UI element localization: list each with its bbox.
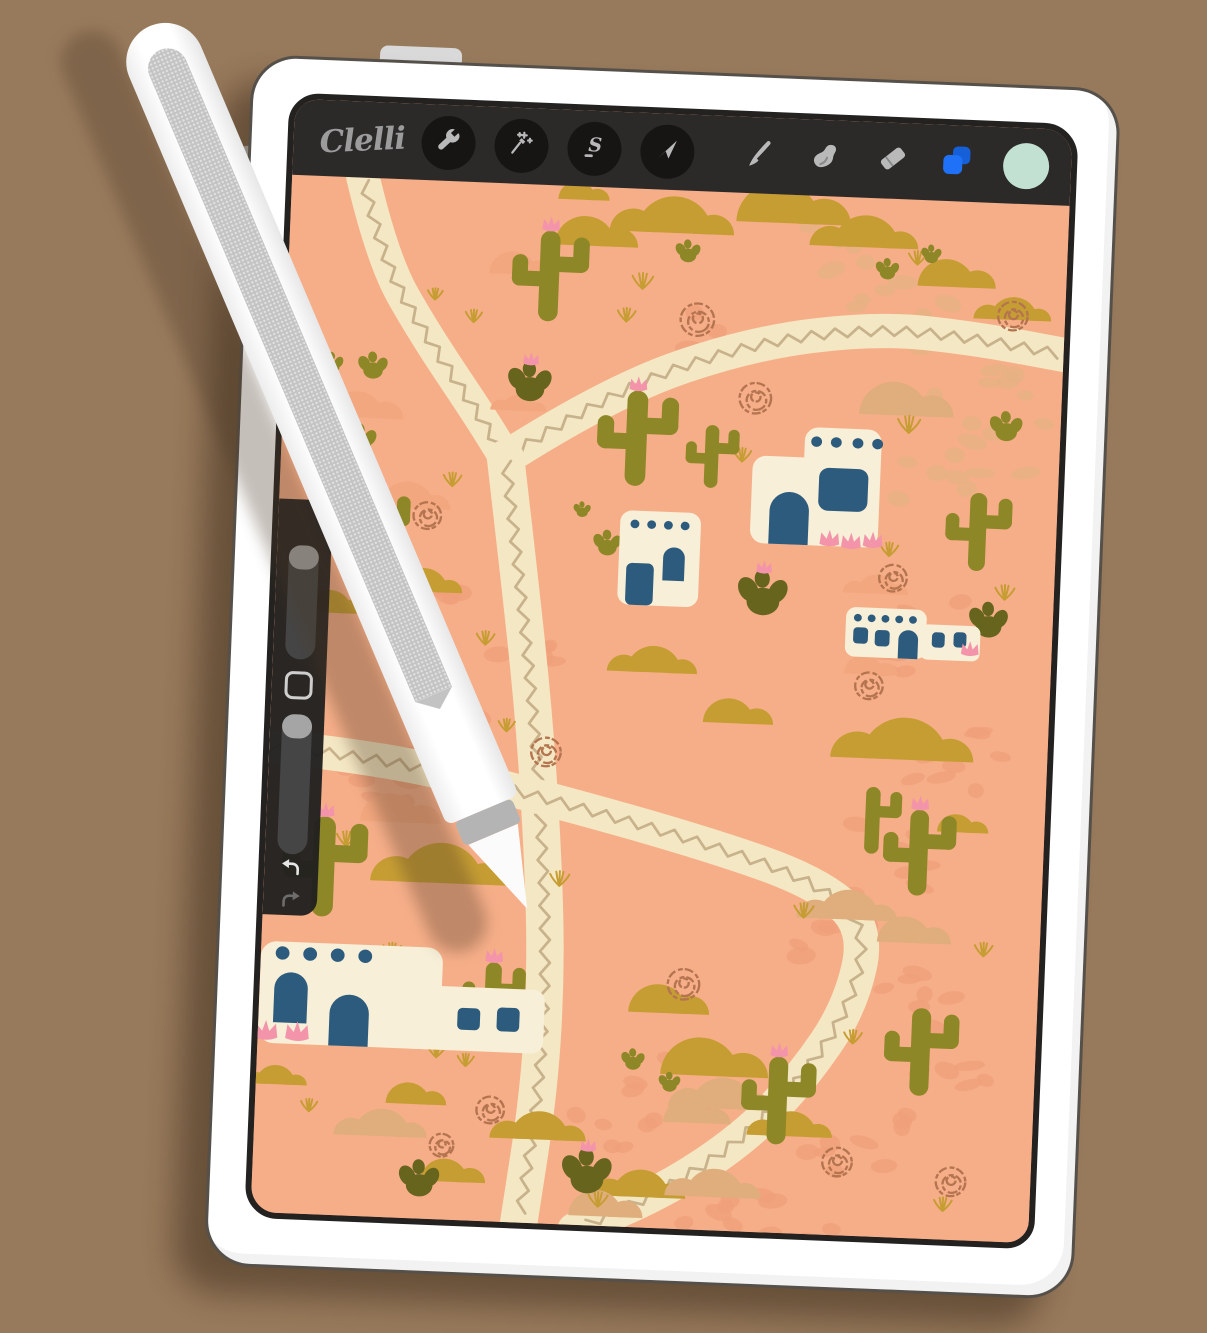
- undo-icon: [278, 868, 305, 886]
- wrench-icon: [434, 126, 462, 159]
- redo-icon: [276, 900, 303, 918]
- magic-wand-icon: [507, 129, 535, 162]
- modify-button[interactable]: [284, 671, 313, 700]
- selection-s-icon: S: [580, 132, 608, 165]
- actions-button[interactable]: [420, 115, 476, 171]
- paint-button[interactable]: [744, 134, 782, 176]
- svg-text:S: S: [588, 133, 603, 157]
- redo-button[interactable]: [277, 887, 304, 914]
- adjustments-button[interactable]: [493, 118, 549, 174]
- eraser-icon: [874, 140, 911, 181]
- selection-button[interactable]: S: [566, 121, 622, 177]
- smudge-finger-icon: [808, 136, 847, 179]
- gallery-logo[interactable]: Clelli: [319, 121, 406, 161]
- color-swatch: [1002, 142, 1050, 190]
- wall-background: { "toolbar": { "logo": "Clelli", "left_b…: [0, 0, 1207, 1333]
- layers-icon: [938, 143, 975, 184]
- color-button[interactable]: [1002, 142, 1050, 190]
- opacity-handle[interactable]: [282, 714, 313, 739]
- layers-button[interactable]: [938, 143, 975, 184]
- transform-button[interactable]: [639, 124, 695, 180]
- undo-button[interactable]: [278, 855, 305, 882]
- erase-button[interactable]: [874, 140, 911, 181]
- brush-icon: [744, 134, 782, 176]
- transform-arrow-icon: [653, 135, 681, 168]
- smudge-button[interactable]: [808, 136, 847, 179]
- opacity-slider[interactable]: [277, 714, 313, 855]
